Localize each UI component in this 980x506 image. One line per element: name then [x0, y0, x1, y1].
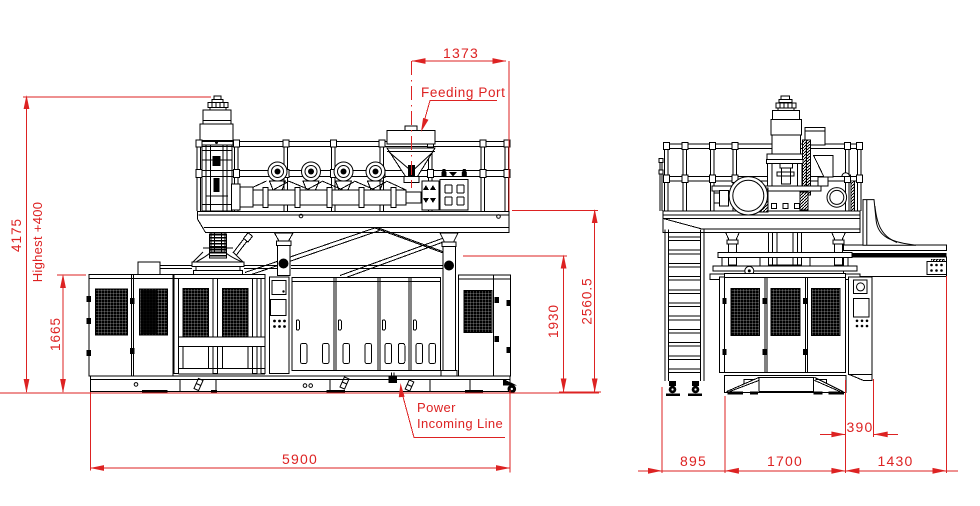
svg-text:2560.5: 2560.5: [580, 277, 595, 324]
svg-text:1665: 1665: [48, 317, 63, 351]
svg-text:Power: Power: [417, 400, 456, 415]
svg-text:1700: 1700: [767, 453, 803, 469]
svg-text:Incoming Line: Incoming Line: [417, 416, 503, 431]
svg-text:1930: 1930: [546, 304, 561, 338]
svg-text:Feeding Port: Feeding Port: [421, 85, 506, 100]
svg-text:1373: 1373: [443, 45, 479, 61]
svg-text:390: 390: [847, 419, 874, 435]
svg-text:4175: 4175: [9, 218, 24, 252]
svg-text:895: 895: [680, 453, 707, 469]
svg-text:5900: 5900: [282, 451, 318, 467]
svg-text:1430: 1430: [878, 453, 914, 469]
svg-text:Highest +400: Highest +400: [30, 202, 45, 283]
